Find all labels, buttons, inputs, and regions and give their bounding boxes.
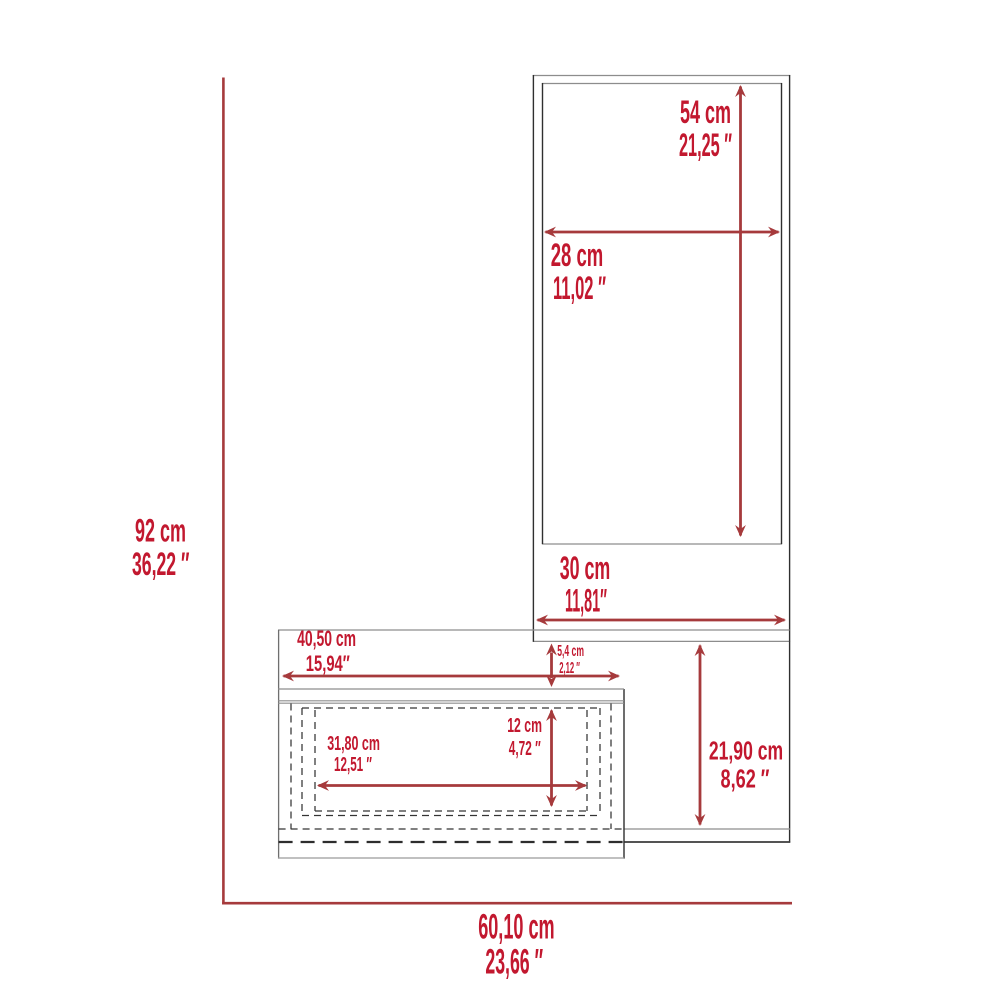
svg-text:40,50 cm: 40,50 cm xyxy=(297,626,356,651)
svg-text:36,22 ″: 36,22 ″ xyxy=(132,546,190,582)
svg-text:15,94″: 15,94″ xyxy=(306,651,350,676)
svg-text:12 cm: 12 cm xyxy=(507,714,542,737)
svg-text:2,12 ″: 2,12 ″ xyxy=(559,660,580,677)
svg-text:54 cm: 54 cm xyxy=(680,94,731,130)
svg-text:21,90 cm: 21,90 cm xyxy=(709,738,783,766)
svg-text:11,02 ″: 11,02 ″ xyxy=(553,270,606,306)
svg-text:92 cm: 92 cm xyxy=(135,513,186,549)
svg-text:31,80 cm: 31,80 cm xyxy=(327,732,380,755)
svg-text:8,62 ″: 8,62 ″ xyxy=(721,766,770,794)
svg-text:23,66 ″: 23,66 ″ xyxy=(485,943,543,982)
svg-text:28 cm: 28 cm xyxy=(551,237,604,273)
svg-text:11,81″: 11,81″ xyxy=(565,583,607,619)
svg-text:60,10 cm: 60,10 cm xyxy=(478,908,554,947)
svg-text:5,4 cm: 5,4 cm xyxy=(557,643,584,660)
svg-text:4,72 ″: 4,72 ″ xyxy=(509,737,541,760)
svg-text:30 cm: 30 cm xyxy=(560,550,611,586)
svg-text:12,51 ″: 12,51 ″ xyxy=(334,753,372,776)
svg-text:21,25 ″: 21,25 ″ xyxy=(679,127,732,163)
